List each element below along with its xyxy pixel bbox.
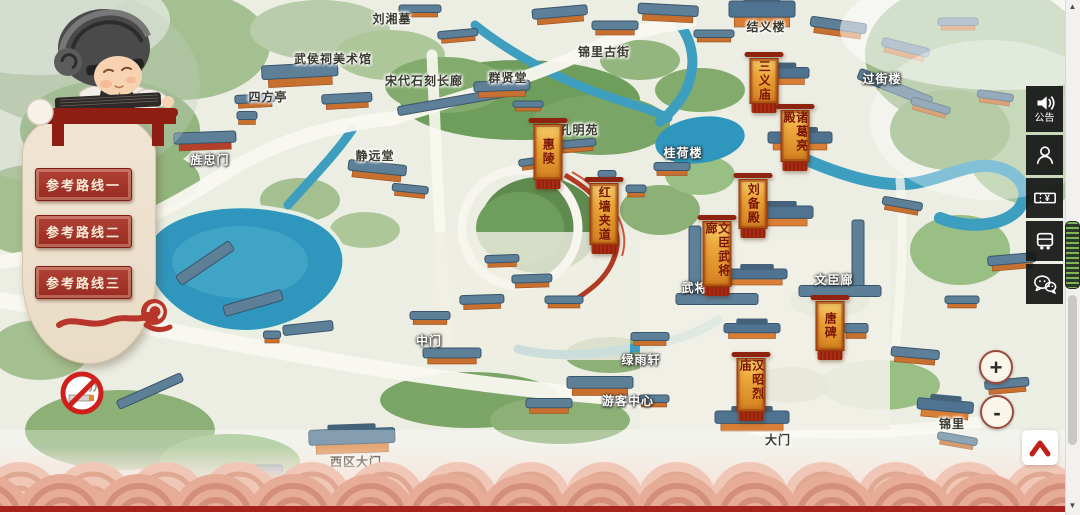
svg-text:¥: ¥ [1044,193,1050,203]
cloud-swirl-decoration [54,295,174,340]
route-panel: 参考路线一 参考路线二 参考路线三 [18,0,178,430]
banner-body: 诸葛亮殿 [781,110,810,162]
map-poi-banner-1[interactable]: 惠陵 [534,118,563,189]
map-poi-banner-2[interactable]: 红墙夹道 [590,177,619,254]
scrollbar-thumb[interactable] [1068,295,1077,445]
banner-fringe [536,180,561,189]
banner-rod [529,118,568,123]
wechat-icon [1033,273,1057,295]
map-poi-banner-8[interactable]: 汉昭烈庙 [737,352,766,421]
map-poi-banner-3[interactable]: 三义庙 [750,52,779,113]
map-poi-banner-7[interactable]: 唐碑 [816,295,845,360]
zoom-out-button[interactable]: - [980,395,1014,429]
banner-body: 唐碑 [816,301,845,351]
toolbar-announcement-button[interactable]: 公告 [1026,86,1063,132]
route-button-2[interactable]: 参考路线二 [35,215,132,248]
banner-fringe [783,162,808,171]
map-poi-banner-5[interactable]: 刘备殿 [739,173,768,238]
toolbar-bus-button[interactable] [1026,221,1063,261]
toolbar-ticket-button[interactable]: ¥ [1026,178,1063,218]
banner-rod [745,52,784,57]
banner-body: 红墙夹道 [590,183,619,245]
bus-icon [1034,230,1056,252]
scrollbar-striped-marker [1065,221,1080,289]
scrollbar-down-arrow[interactable]: ▼ [1066,500,1079,512]
back-to-top-button[interactable] [1022,430,1058,465]
banner-label: 红墙夹道 [598,186,611,242]
route-button-1[interactable]: 参考路线一 [35,168,132,201]
banner-label: 三义庙 [758,60,771,102]
banner-body: 刘备殿 [739,179,768,229]
banner-label: 诸葛亮殿 [782,111,807,161]
banner-rod [585,177,624,182]
mascot-illustration [18,0,198,160]
banner-fringe [592,245,617,254]
no-smoking-icon [60,371,104,415]
banner-fringe [752,104,777,113]
banner-fringe [705,287,730,296]
ticket-icon: ¥ [1033,188,1057,208]
banner-body: 三义庙 [750,58,779,104]
speaker-icon [1035,94,1055,112]
banner-rod [776,104,815,109]
banner-rod [732,352,771,357]
toolbar-announcement-label: 公告 [1035,114,1055,124]
banner-fringe [741,229,766,238]
map-poi-banner-6[interactable]: 文臣武将廊 [703,215,732,296]
banner-rod [698,215,737,220]
banner-body: 文臣武将廊 [703,221,732,287]
banner-label: 唐碑 [824,312,837,340]
banner-fringe [818,351,843,360]
map-poi-banner-4[interactable]: 诸葛亮殿 [781,104,810,171]
banner-fringe [739,412,764,421]
chevron-up-icon [1028,439,1052,457]
scrollbar-up-arrow[interactable]: ▲ [1066,1,1079,13]
toolbar-account-button[interactable] [1026,135,1063,175]
banner-rod [811,295,850,300]
banner-label: 惠陵 [542,138,555,166]
banner-body: 惠陵 [534,124,563,180]
toolbar-wechat-button[interactable] [1026,264,1063,304]
banner-label: 汉昭烈庙 [738,359,763,411]
toolbar: 公告 ¥ [1026,86,1063,304]
banner-rod [734,173,773,178]
person-icon [1034,144,1056,166]
zoom-in-button[interactable]: + [979,350,1013,384]
banner-body: 汉昭烈庙 [737,358,766,412]
banner-label: 刘备殿 [747,183,760,225]
banner-label: 文臣武将廊 [704,222,729,286]
